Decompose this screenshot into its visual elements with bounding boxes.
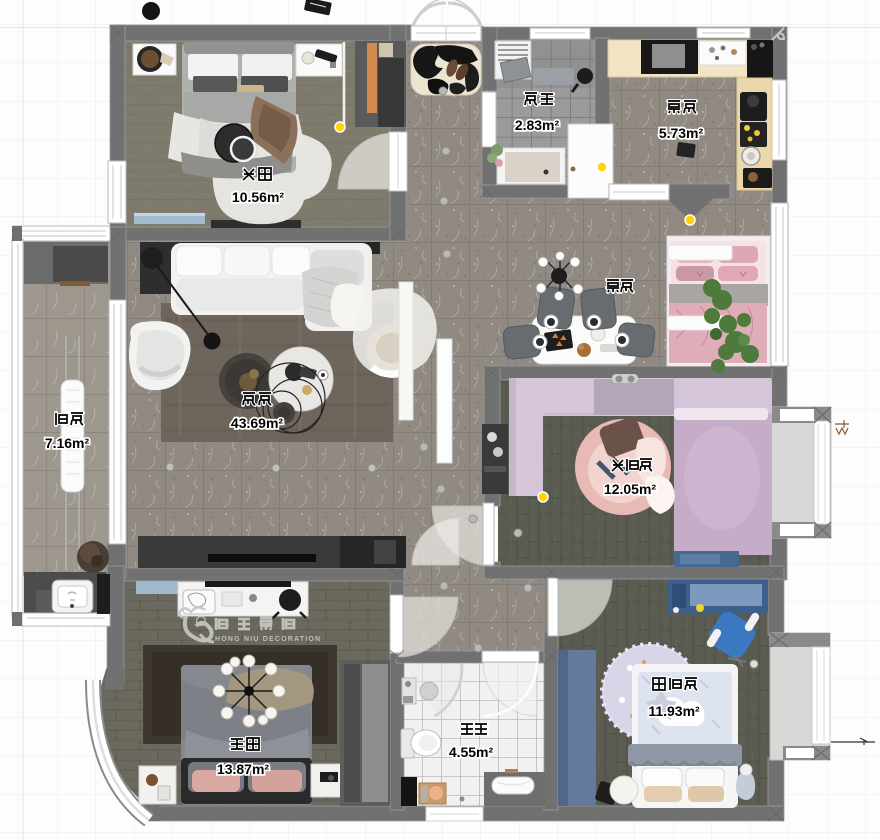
svg-text:43.69m²: 43.69m²	[231, 415, 283, 431]
svg-text:4.55m²: 4.55m²	[449, 744, 494, 760]
svg-text:7.16m²: 7.16m²	[45, 435, 90, 451]
svg-text:12.05m²: 12.05m²	[604, 481, 656, 497]
svg-text:13.87m²: 13.87m²	[217, 761, 269, 777]
svg-text:10.56m²: 10.56m²	[232, 189, 284, 205]
svg-text:5.73m²: 5.73m²	[659, 125, 704, 141]
svg-text:2.83m²: 2.83m²	[515, 117, 560, 133]
svg-text:11.93m²: 11.93m²	[648, 703, 700, 719]
svg-text:HONG NIU DECORATION: HONG NIU DECORATION	[215, 636, 321, 643]
